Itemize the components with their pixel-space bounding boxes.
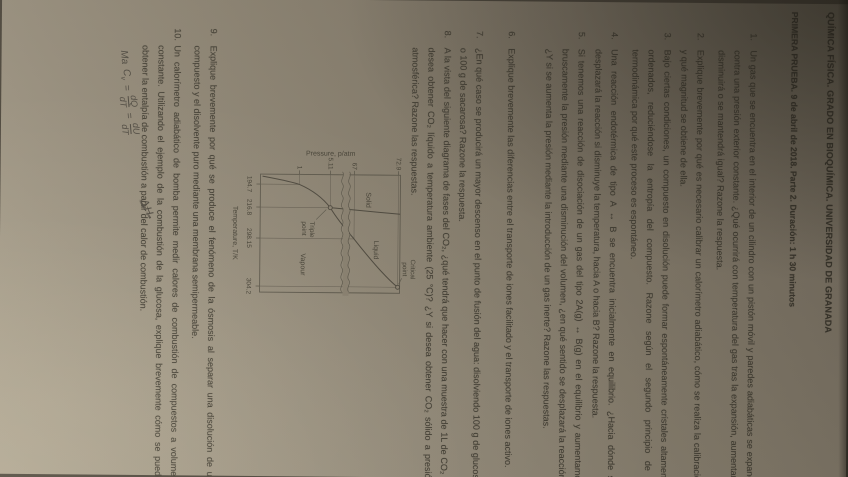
- question-number: 10.: [170, 28, 186, 45]
- triple-point-pointer: [316, 209, 326, 219]
- t-tick: 304.2: [245, 277, 252, 294]
- question-text: Explique brevemente por qué se produce e…: [190, 45, 219, 477]
- question-1: 1.Un gas que se encuentra en el interior…: [710, 33, 762, 477]
- vapour-region-label: Vapour: [299, 253, 306, 276]
- question-text: Explique brevemente las diferencias entr…: [503, 48, 517, 467]
- question-number: 1.: [746, 33, 762, 50]
- temperature-axis-label: Temperature, T/K: [231, 205, 238, 259]
- question-7: 7.¿En qué caso se producirá un mayor des…: [452, 30, 488, 477]
- critical-point-pointer: [399, 278, 402, 284]
- solid-vapour-curve: [262, 176, 330, 208]
- t-tick: 194.7: [245, 175, 252, 192]
- question-6: 6.Explique brevemente las diferencias en…: [500, 31, 520, 477]
- t-tick: 216.8: [245, 198, 252, 215]
- question-4: 4.Una reacción endotérmica de tipo A ↔ B…: [587, 31, 623, 477]
- question-2: 2.Explique brevemente por qué es necesar…: [673, 32, 709, 477]
- p-tick: 72.9: [395, 157, 402, 170]
- guide-lines: [260, 174, 399, 287]
- handwriting-prefix: Ma: [119, 49, 131, 64]
- question-number: 7.: [472, 30, 488, 47]
- question-text: Un gas que se encuentra en el interior d…: [715, 50, 759, 477]
- triple-point-label-2: point: [300, 221, 307, 235]
- question-text: Una reacción endotérmica de tipo A ↔ B s…: [590, 48, 619, 477]
- pressure-tick-labels: 72.9 67 5.11 1: [296, 156, 402, 170]
- solid-liquid-curve: [330, 207, 400, 214]
- critical-point-label-2: point: [401, 262, 408, 276]
- p-tick: 5.11: [327, 157, 334, 170]
- question-number: 3.: [660, 32, 676, 49]
- question-text: Explique brevemente por qué es necesario…: [678, 49, 705, 477]
- question-number: 2.: [693, 32, 709, 49]
- question-text: ¿En qué caso se producirá un mayor desce…: [457, 47, 485, 477]
- question-number: 6.: [504, 31, 520, 48]
- plot-frame: [260, 174, 401, 293]
- solid-region-label: Solid: [364, 192, 371, 208]
- phase-boundaries: [262, 176, 401, 287]
- critical-point-label-1: Critical: [409, 259, 416, 279]
- question-number: 4.: [607, 32, 623, 49]
- question-number: 5.: [574, 31, 590, 48]
- exam-paper: QUÍMICA FÍSICA. GRADO EN BIOQUÍMICA. UNI…: [0, 0, 848, 477]
- photo-canvas: QUÍMICA FÍSICA. GRADO EN BIOQUÍMICA. UNI…: [0, 0, 848, 477]
- t-tick: 298.15: [245, 227, 252, 247]
- fraction-dq-dt: dQ dT: [118, 94, 139, 108]
- equals-sign: =: [123, 112, 134, 119]
- triple-point-marker: [328, 205, 332, 209]
- axis-break: [341, 171, 351, 295]
- paper-top-edge-shadow: [838, 0, 848, 477]
- question-number: 9.: [206, 28, 222, 45]
- equals-sign: =: [121, 84, 132, 91]
- question-number: 8.: [440, 30, 456, 47]
- co2-phase-diagram: 72.9 67 5.11 1 194.7 216.8 298.15 304.2 …: [217, 124, 419, 336]
- pressure-axis-label: Pressure, p/atm: [306, 150, 356, 157]
- liquid-region-label: Liquid: [372, 240, 379, 259]
- question-text: Bajo ciertas condiciones, un compuesto e…: [629, 49, 673, 477]
- p-tick: 67: [351, 162, 358, 170]
- heat-capacity-symbol: Cv: [119, 68, 133, 80]
- question-9: 9.Explique brevemente por qué se produce…: [186, 28, 222, 477]
- page-title: QUÍMICA FÍSICA. GRADO EN BIOQUÍMICA. UNI…: [822, 11, 836, 471]
- liquid-vapour-curve: [330, 207, 399, 287]
- triple-point-label-1: Triple: [308, 221, 315, 237]
- question-3: 3.Bajo ciertas condiciones, un compuesto…: [624, 32, 676, 477]
- critical-point-marker: [396, 285, 400, 289]
- question-5: 5.Si tenemos una reacción de disociación…: [538, 31, 590, 477]
- question-text: Si tenemos una reacción de disociación d…: [541, 48, 586, 477]
- page-subtitle: PRIMERA PRUEBA. 9 de abril de 2018. Part…: [786, 11, 800, 471]
- p-tick: 1: [296, 165, 303, 169]
- fraction-du-dt: dU dT: [120, 122, 141, 135]
- temperature-tick-labels: 194.7 216.8 298.15 304.2: [245, 175, 253, 294]
